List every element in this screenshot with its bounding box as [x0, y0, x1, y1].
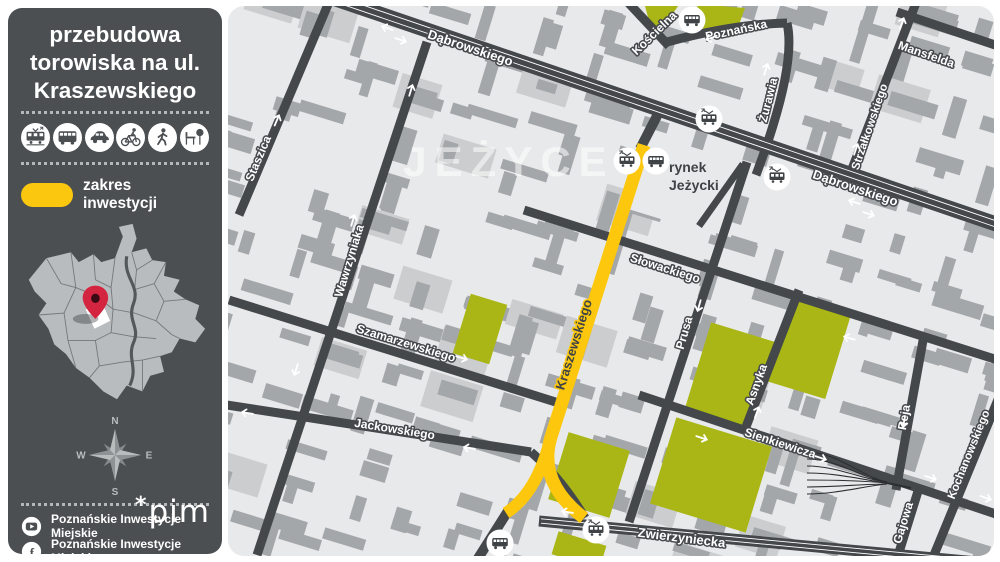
bus-stop-icon [679, 7, 706, 34]
compass-n: N [111, 416, 118, 427]
poznan-districts-map [17, 219, 213, 411]
svg-text:f: f [30, 544, 35, 554]
legend-swatch [21, 183, 73, 207]
infographic: przebudowa torowiska na ul. Kraszewskieg… [0, 0, 1000, 562]
direction-arrow-icon [979, 493, 992, 503]
direction-arrow-icon [291, 363, 301, 376]
sidebar: przebudowa torowiska na ul. Kraszewskieg… [8, 8, 222, 554]
legend: zakres inwestycji [8, 169, 222, 217]
street-label: Kochanowskiego [946, 409, 993, 501]
direction-arrow-icon [394, 35, 407, 45]
dotted-divider [21, 111, 209, 114]
tram-stop-icon [583, 517, 610, 544]
dotted-divider [21, 162, 209, 165]
bike-icon [116, 123, 145, 152]
city-map: JEŻYCE DąbrowskiegoDąbrowskiegoPoznańska… [228, 6, 994, 556]
facebook-label: Poznańskie Inwestycje Miejskie [51, 537, 222, 554]
tram-stop-icon [764, 164, 791, 191]
bus-stop-icon [643, 148, 670, 175]
legend-label: zakres inwestycji [83, 177, 209, 213]
direction-arrow-icon [862, 209, 875, 219]
direction-arrow-icon [761, 63, 771, 76]
page-title: przebudowa torowiska na ul. Kraszewskieg… [16, 21, 214, 105]
compass-s: S [112, 487, 119, 498]
facebook-icon: f [21, 541, 42, 554]
place-label-rynek-jezycki: rynek [669, 159, 707, 175]
direction-arrow-icon [843, 333, 856, 343]
compass-star [89, 429, 141, 481]
compass-e: E [146, 450, 153, 461]
park [453, 294, 507, 364]
city-outline [29, 224, 205, 399]
bus-stop-icon [487, 530, 514, 557]
pim-logo: *pim [135, 493, 210, 530]
youtube-icon [21, 516, 42, 537]
pedestrian-icon [148, 123, 177, 152]
compass-w: W [76, 450, 86, 461]
direction-arrow-icon [848, 197, 861, 207]
stop-bench-icon [180, 123, 209, 152]
tram-icon [21, 123, 50, 152]
tram-stop-icon [696, 106, 723, 133]
place-label-rynek-jezycki: Jeżycki [669, 177, 719, 193]
car-icon [85, 123, 114, 152]
facebook-link[interactable]: f Poznańskie Inwestycje Miejskie [21, 539, 222, 554]
tram-stop-icon [614, 148, 641, 175]
compass-rose: N E S W [69, 411, 161, 499]
district-watermark: JEŻYCE [403, 138, 614, 185]
transport-icon-row [8, 118, 222, 158]
bus-icon [53, 123, 82, 152]
